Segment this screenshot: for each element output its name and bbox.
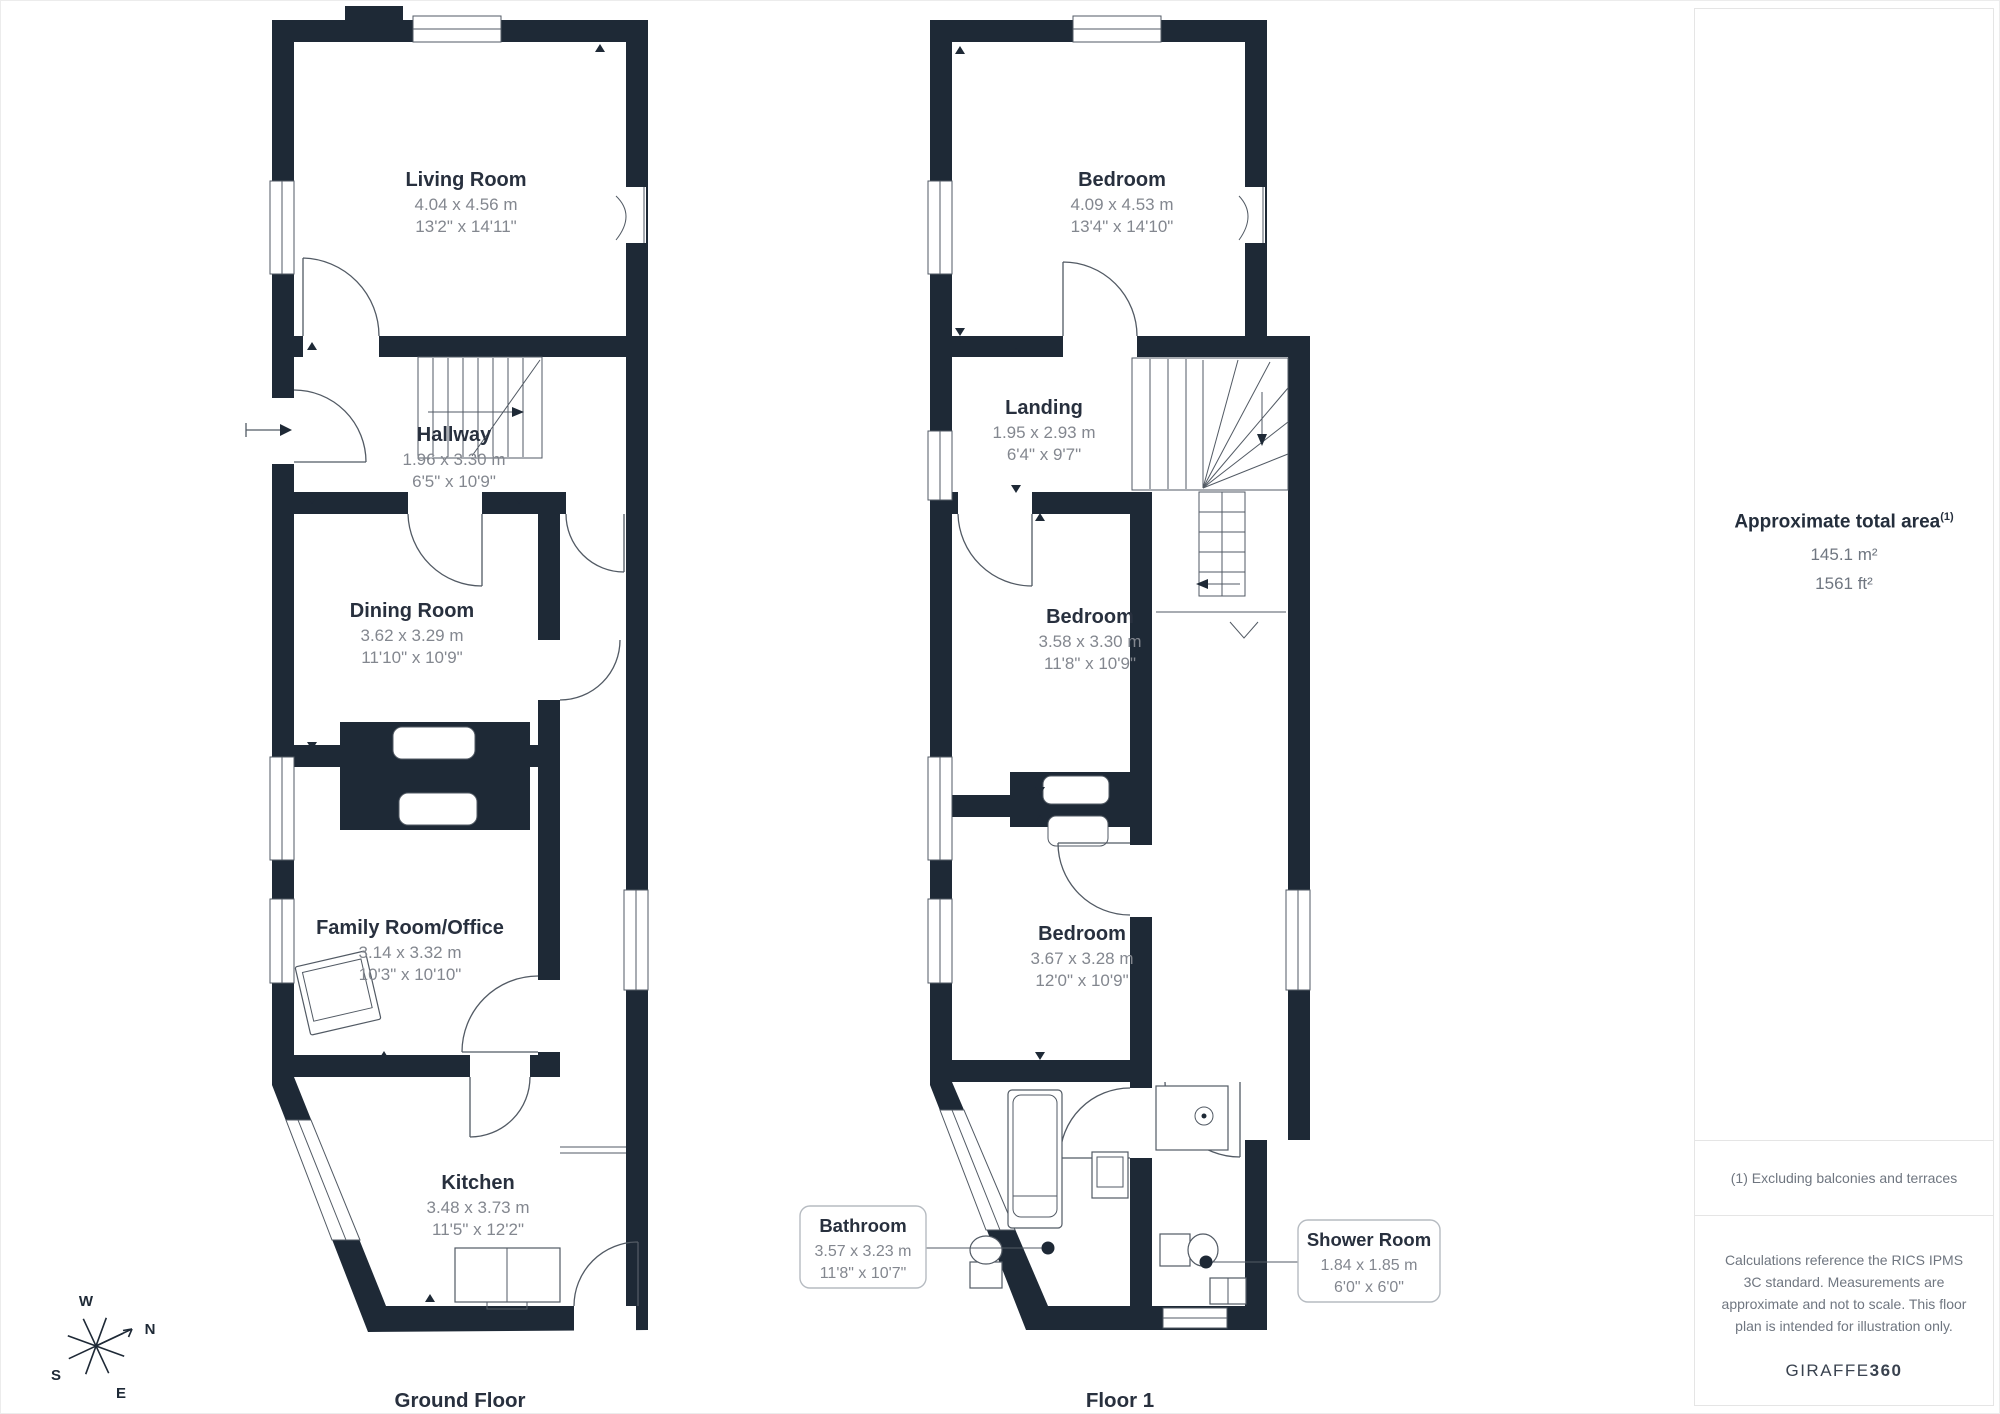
footnote-marker: (1) (1940, 511, 1953, 523)
footnote-section: (1) Excluding balconies and terraces (1695, 1140, 1993, 1216)
callout-dot (1200, 1256, 1213, 1269)
kitchen-sink (295, 951, 381, 1035)
info-sidebar: Approximate total area(1) 145.1 m² 1561 … (1694, 8, 1994, 1406)
room-label-metric: 3.58 x 3.30 m (1038, 632, 1141, 651)
room-label-metric: 3.57 x 3.23 m (815, 1243, 912, 1260)
total-area-metric: 145.1 m² (1695, 545, 1993, 565)
compass-north-label: N (145, 1321, 156, 1338)
kitchen-stove (455, 1248, 560, 1309)
room-label-metric: 3.48 x 3.73 m (426, 1198, 529, 1217)
shower-tray (1156, 1086, 1228, 1150)
room-label-imperial: 11'5" x 12'2" (432, 1220, 524, 1239)
compass-rose: W N S E (51, 1293, 155, 1402)
bathroom-sink (1092, 1152, 1128, 1198)
room-label-name: Bedroom (1046, 606, 1134, 628)
room-label-imperial: 13'4" x 14'10" (1071, 217, 1174, 236)
room-label-metric: 3.67 x 3.28 m (1030, 949, 1133, 968)
disclaimer-section: Calculations reference the RICS IPMS 3C … (1695, 1215, 1993, 1405)
brand-logo: GIRAFFE360 (1695, 1361, 1993, 1381)
compass-south-label: S (51, 1367, 61, 1384)
total-area-section: Approximate total area(1) 145.1 m² 1561 … (1695, 9, 1993, 1141)
room-label-imperial: 6'4" x 9'7" (1007, 445, 1081, 464)
room-label-name: Shower Room (1307, 1229, 1431, 1250)
callout-dot (1042, 1242, 1055, 1255)
room-label-imperial: 11'8" x 10'9" (1044, 654, 1136, 673)
room-label-name: Hallway (417, 424, 492, 446)
room-label-metric: 1.95 x 2.93 m (992, 423, 1095, 442)
room-label-name: Kitchen (441, 1172, 514, 1194)
total-area-imperial: 1561 ft² (1695, 574, 1993, 594)
room-label-name: Dining Room (350, 600, 474, 622)
room-label-name: Landing (1005, 397, 1083, 419)
room-label-imperial: 12'0" x 10'9" (1035, 971, 1128, 990)
floor-plan-first: Bedroom 4.09 x 4.53 m 13'4" x 14'10" Lan… (800, 16, 1440, 1412)
room-label-imperial: 11'8" x 10'7" (820, 1265, 907, 1282)
room-label-name: Family Room/Office (316, 917, 504, 939)
footnote-text: (1) Excluding balconies and terraces (1731, 1170, 1957, 1186)
ground-floor-title: Ground Floor (395, 1389, 526, 1412)
toilet (970, 1236, 1002, 1288)
first-floor-title: Floor 1 (1086, 1389, 1154, 1412)
bathtub (1008, 1090, 1062, 1228)
room-label-imperial: 11'10" x 10'9" (361, 648, 462, 667)
room-label-metric: 4.09 x 4.53 m (1070, 195, 1173, 214)
room-label-name: Living Room (405, 169, 526, 191)
room-label-imperial: 10'3" x 10'10" (359, 965, 462, 984)
room-label-imperial: 6'5" x 10'9" (412, 472, 496, 491)
room-label-metric: 4.04 x 4.56 m (414, 195, 517, 214)
ground-chimney-breast (340, 722, 530, 830)
room-label-metric: 1.84 x 1.85 m (1321, 1257, 1418, 1274)
total-area-title: Approximate total area(1) (1695, 511, 1993, 533)
room-label-name: Bedroom (1078, 169, 1166, 191)
room-label-imperial: 6'0" x 6'0" (1334, 1279, 1404, 1296)
room-label-name: Bathroom (819, 1215, 906, 1236)
room-label-imperial: 13'2" x 14'11" (415, 217, 516, 236)
room-label-name: Bedroom (1038, 923, 1126, 945)
compass-west-label: W (79, 1293, 94, 1310)
shower-sink (1210, 1278, 1246, 1304)
room-label-metric: 1.96 x 3.30 m (402, 450, 505, 469)
chimney-stack (345, 6, 403, 22)
floor-plan-ground: Living Room 4.04 x 4.56 m 13'2" x 14'11"… (246, 6, 648, 1412)
compass-east-label: E (116, 1385, 126, 1402)
room-label-metric: 3.14 x 3.32 m (358, 943, 461, 962)
room-label-metric: 3.62 x 3.29 m (360, 626, 463, 645)
disclaimer-text: Calculations reference the RICS IPMS 3C … (1716, 1249, 1972, 1337)
